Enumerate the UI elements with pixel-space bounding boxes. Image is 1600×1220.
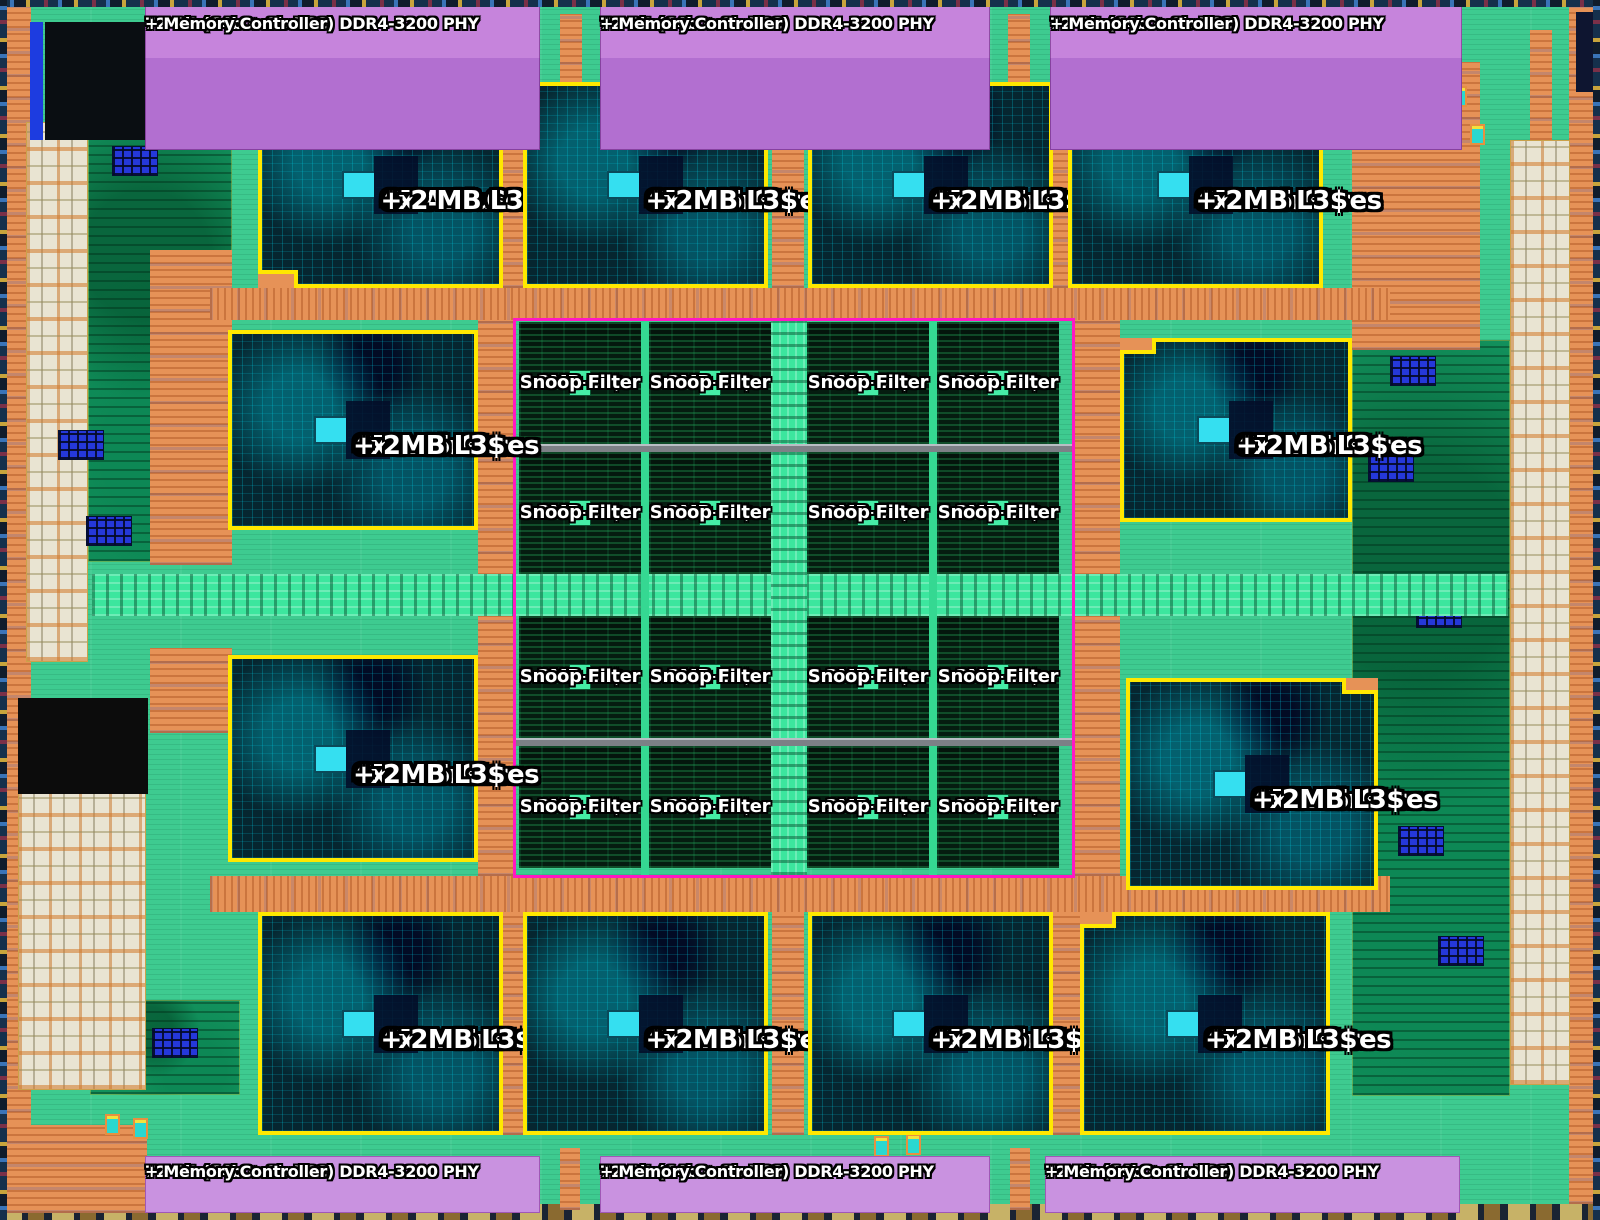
io-corner-bottom-left bbox=[7, 1125, 147, 1213]
cluster-cache: + 2MB L3$ bbox=[1236, 430, 1388, 463]
cluster-notch bbox=[1342, 678, 1378, 694]
cpu-cluster-left-lower: CPU Cluster4x A75 Cores+ 2MB L3$ bbox=[228, 655, 478, 862]
io-block-left-low bbox=[150, 648, 232, 733]
sram-array-dots bbox=[152, 1028, 198, 1058]
ddr-phy-banner-bottom-2: 72-Bit (64b + 8b ECC) DDR4-3200 PHY+ Mem… bbox=[600, 1156, 990, 1213]
ddr-phy-banner-bottom-3: 72-Bit (64b + 8b ECC) DDR4-3200 PHY+ Mem… bbox=[1045, 1156, 1460, 1213]
l4-tile-1: 2MB L4$+Snoop Filter bbox=[519, 322, 641, 444]
ddr-phy-banner-text: 72-Bit (64b + 8b ECC) DDR4-3200 PHY+ Mem… bbox=[600, 6, 990, 13]
cluster-cache: + 2 MB L3$ bbox=[381, 185, 541, 218]
banner-line2: + Memory Controller bbox=[145, 13, 327, 35]
cpu-cluster-right-lower: CPU Cluster4x A75 Cores+ 2MB L3$ bbox=[1126, 678, 1378, 890]
ddr-phy-banner-bottom-1: 72-Bit (64b + 8b ECC) DDR4-3200 PHY+ Mem… bbox=[145, 1156, 540, 1213]
l4-tile-3: 2MB L4$+Snoop Filter bbox=[807, 322, 929, 444]
cpu-cluster-left-upper: CPU Cluster4x A75 Cores+ 2MB L3$ bbox=[228, 330, 478, 530]
l4-snoop-label: Snoop Filter bbox=[938, 502, 1058, 524]
ddr-phy-banner-text: 72-Bit (64b + 8b ECC) DDR4-3200 PHY+ Mem… bbox=[600, 1156, 990, 1161]
sram-array-dots bbox=[1438, 936, 1484, 966]
banner-line2: + Memory Controller bbox=[600, 1161, 782, 1183]
l4-tile-8: 2MB L4$+Snoop Filter bbox=[937, 452, 1059, 574]
phy-gap-bar-bottom-1 bbox=[560, 1148, 580, 1210]
die-edge-left bbox=[0, 0, 7, 1220]
l4-tile-9: 2MB L4$+Snoop Filter bbox=[519, 616, 641, 738]
l4-snoop-label: Snoop Filter bbox=[938, 372, 1058, 394]
l4-tile-2: 2MB L4$+Snoop Filter bbox=[649, 322, 771, 444]
corner-block-top-right bbox=[1576, 12, 1593, 92]
l4-snoop-label: Snoop Filter bbox=[520, 666, 640, 688]
cluster-notch bbox=[258, 270, 298, 288]
l4-snoop-label: Snoop Filter bbox=[650, 666, 770, 688]
small-macro-icon bbox=[906, 1134, 921, 1155]
cluster-cache: + 2MB L3$ bbox=[353, 759, 505, 792]
ddr-phy-banner-top-1: 72-Bit (64b + 8b ECC) DDR4-3200 PHY+ Mem… bbox=[145, 6, 540, 150]
analog-cell-column-left-lower bbox=[18, 755, 146, 1090]
ddr-phy-banner-text: 72-Bit (64b + 8b ECC) DDR4-3200 PHY+ Mem… bbox=[1045, 1156, 1460, 1161]
cpu-cluster-bottom-1: CPU Cluster4x A75 Cores+ 2MB L3$ bbox=[258, 912, 503, 1135]
cluster-notch bbox=[1080, 912, 1116, 928]
banner-line2: + Memory Controller bbox=[1050, 13, 1232, 35]
cluster-cache: + 2MB L3$ bbox=[931, 1024, 1083, 1057]
l4-tile-16: 2MB L4$+Snoop Filter bbox=[937, 746, 1059, 868]
ddr-phy-banner-top-2: 72-Bit (64b + 8b ECC) DDR4-3200 PHY+ Mem… bbox=[600, 6, 990, 150]
banner-line2: + Memory Controller bbox=[1045, 1161, 1227, 1183]
sram-array-dots bbox=[1390, 356, 1436, 386]
cpu-cluster-right-upper: CPU Cluster4x A75 Cores+ 2MB L3$ bbox=[1120, 338, 1352, 522]
phy-gap-bar-bottom-2 bbox=[1010, 1148, 1030, 1210]
blue-bar-top-left bbox=[30, 22, 43, 140]
l4-snoop-label: Snoop Filter bbox=[520, 502, 640, 524]
l4-snoop-label: Snoop Filter bbox=[808, 796, 928, 818]
l4-tile-5: 2MB L4$+Snoop Filter bbox=[519, 452, 641, 574]
banner-line2: + Memory Controller bbox=[145, 1161, 327, 1183]
cluster-cache: + 2MB L3$ bbox=[381, 1024, 533, 1057]
l4-snoop-label: Snoop Filter bbox=[520, 372, 640, 394]
l4-tile-6: 2MB L4$+Snoop Filter bbox=[649, 452, 771, 574]
ddr-phy-banner-top-3: 72-Bit (64b + 8b ECC) DDR4-3200 PHY+ Mem… bbox=[1050, 6, 1462, 150]
cluster-cache: + 2MB L3$ bbox=[1196, 185, 1348, 218]
io-strip-right bbox=[1569, 7, 1593, 1204]
annotated-cpu-die-shot: 2MB L4$+Snoop Filter 2MB L4$+Snoop Filte… bbox=[0, 0, 1600, 1220]
wiring-band-top bbox=[210, 288, 1390, 320]
cluster-cache: + 2MB L3$ bbox=[1252, 784, 1404, 817]
sram-array-dots bbox=[1398, 826, 1444, 856]
l4-snoop-label: Snoop Filter bbox=[808, 502, 928, 524]
cluster-cache: + 2MB L3$ bbox=[1205, 1024, 1357, 1057]
analog-cell-column-right bbox=[1510, 140, 1570, 1085]
l4-snoop-label: Snoop Filter bbox=[520, 796, 640, 818]
cluster-cache: + 2MB L3$ bbox=[353, 430, 505, 463]
small-macro-icon bbox=[133, 1118, 148, 1139]
l4-snoop-label: Snoop Filter bbox=[938, 666, 1058, 688]
l4-tile-12: 2MB L4$+Snoop Filter bbox=[937, 616, 1059, 738]
banner-line2: + Memory Controller bbox=[600, 13, 782, 35]
cpu-cluster-bottom-4: CPU Cluster4x A75 Cores+ 2MB L3$ bbox=[1080, 912, 1330, 1135]
cpu-cluster-bottom-2: CPU Cluster4x A75 Cores+ 2MB L3$ bbox=[523, 912, 768, 1135]
sram-array-dots bbox=[86, 516, 132, 546]
cluster-cache: + 2MB L3$ bbox=[646, 185, 798, 218]
l4-tile-15: 2MB L4$+Snoop Filter bbox=[807, 746, 929, 868]
cluster-cache: + 2MB L3$ bbox=[646, 1024, 798, 1057]
sram-array-dots bbox=[112, 146, 158, 176]
fuse-rom-block-left bbox=[18, 698, 148, 794]
ddr-phy-banner-text: 72-Bit (64b + 8b ECC) DDR4-3200 PHY+ Mem… bbox=[145, 1156, 540, 1161]
small-macro-icon bbox=[874, 1136, 889, 1157]
l4-snoop-label: Snoop Filter bbox=[650, 372, 770, 394]
l4-tile-10: 2MB L4$+Snoop Filter bbox=[649, 616, 771, 738]
l4-snoop-label: Snoop Filter bbox=[808, 372, 928, 394]
cpu-cluster-bottom-3: CPU Cluster4x A75 Cores+ 2MB L3$ bbox=[808, 912, 1053, 1135]
small-macro-icon bbox=[105, 1114, 120, 1135]
l4-snoop-label: Snoop Filter bbox=[808, 666, 928, 688]
corner-block-top-left bbox=[45, 22, 145, 140]
ddr-phy-banner-text: 72-Bit (64b + 8b ECC) DDR4-3200 PHY+ Mem… bbox=[1050, 6, 1462, 13]
analog-cell-column-left-upper bbox=[26, 122, 88, 662]
cluster-cache: + 2MB L3$ bbox=[931, 185, 1083, 218]
sram-array-dots bbox=[58, 430, 104, 460]
ddr-phy-banner-text: 72-Bit (64b + 8b ECC) DDR4-3200 PHY+ Mem… bbox=[145, 6, 540, 13]
small-macro-icon bbox=[1470, 124, 1485, 145]
l4-snoop-label: Snoop Filter bbox=[938, 796, 1058, 818]
l4-tile-7: 2MB L4$+Snoop Filter bbox=[807, 452, 929, 574]
l4-snoop-label: Snoop Filter bbox=[650, 502, 770, 524]
l4-tile-11: 2MB L4$+Snoop Filter bbox=[807, 616, 929, 738]
l4-snoop-label: Snoop Filter bbox=[650, 796, 770, 818]
die-edge-right bbox=[1593, 0, 1600, 1220]
cluster-notch bbox=[1120, 338, 1156, 354]
l4-tile-4: 2MB L4$+Snoop Filter bbox=[937, 322, 1059, 444]
die-edge-top bbox=[0, 0, 1600, 7]
l4-tile-14: 2MB L4$+Snoop Filter bbox=[649, 746, 771, 868]
